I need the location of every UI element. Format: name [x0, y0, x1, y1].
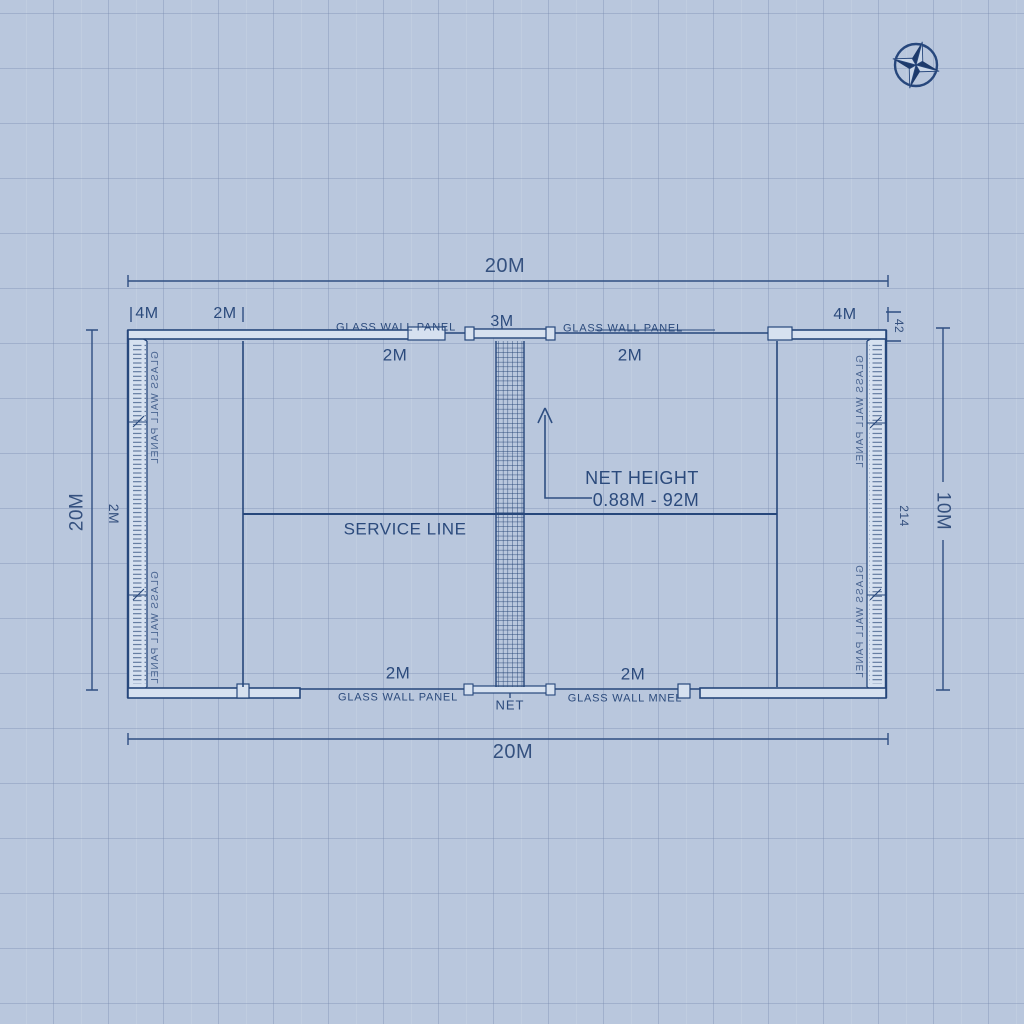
blueprint-canvas: 20M 20M 20M 2M 10M 214 42 4M 2M 4M 3M GL…: [0, 0, 1024, 1024]
court-plan-drawing: [0, 0, 1024, 1024]
dim-left-height: 20M: [68, 493, 87, 531]
dim-right-height: 10M: [934, 492, 953, 530]
zone-top-right: 2M: [618, 347, 643, 364]
net-height-title: NET HEIGHT: [585, 469, 699, 487]
zone-top-left: 2M: [383, 347, 408, 364]
net-label: NET: [496, 699, 525, 712]
net-height-value: 0.88M - 92M: [593, 491, 700, 509]
wall-label-bottom-right: GLASS WALL MNEL: [568, 694, 683, 705]
net-height-arrow: [538, 408, 592, 498]
net-band: [496, 341, 524, 687]
dim-bottom-width: 20M: [493, 742, 533, 762]
zone-bottom-right: 2M: [621, 666, 646, 683]
service-line-label: SERVICE LINE: [344, 521, 467, 538]
dim-back-left: 4M: [135, 306, 158, 322]
dim-right-offset: 214: [898, 505, 910, 527]
compass-icon: [887, 36, 946, 95]
dim-back-right: 4M: [833, 307, 856, 323]
wall-label-top-left: GLASS WALL PANEL: [336, 323, 456, 334]
wall-label-right-upper: GLASS WALL PANEL: [856, 355, 866, 468]
dim-right-top: 42: [893, 319, 905, 333]
dim-side-left: 2M: [213, 306, 236, 322]
zone-bottom-left: 2M: [386, 665, 411, 682]
wall-label-left-upper: GLASS WALL PANEL: [151, 351, 161, 464]
dim-left-offset: 2M: [107, 504, 121, 524]
wall-label-right-lower: GLASS WALL PANEL: [856, 565, 866, 678]
dim-top-width: 20M: [485, 256, 525, 276]
dim-net-span: 3M: [490, 314, 513, 330]
wall-label-left-lower: GLASS WALL PANEL: [151, 571, 161, 684]
wall-label-bottom-left: GLASS WALL PANEL: [338, 693, 458, 704]
wall-label-top-right: GLASS WALL PANEL: [563, 324, 683, 335]
